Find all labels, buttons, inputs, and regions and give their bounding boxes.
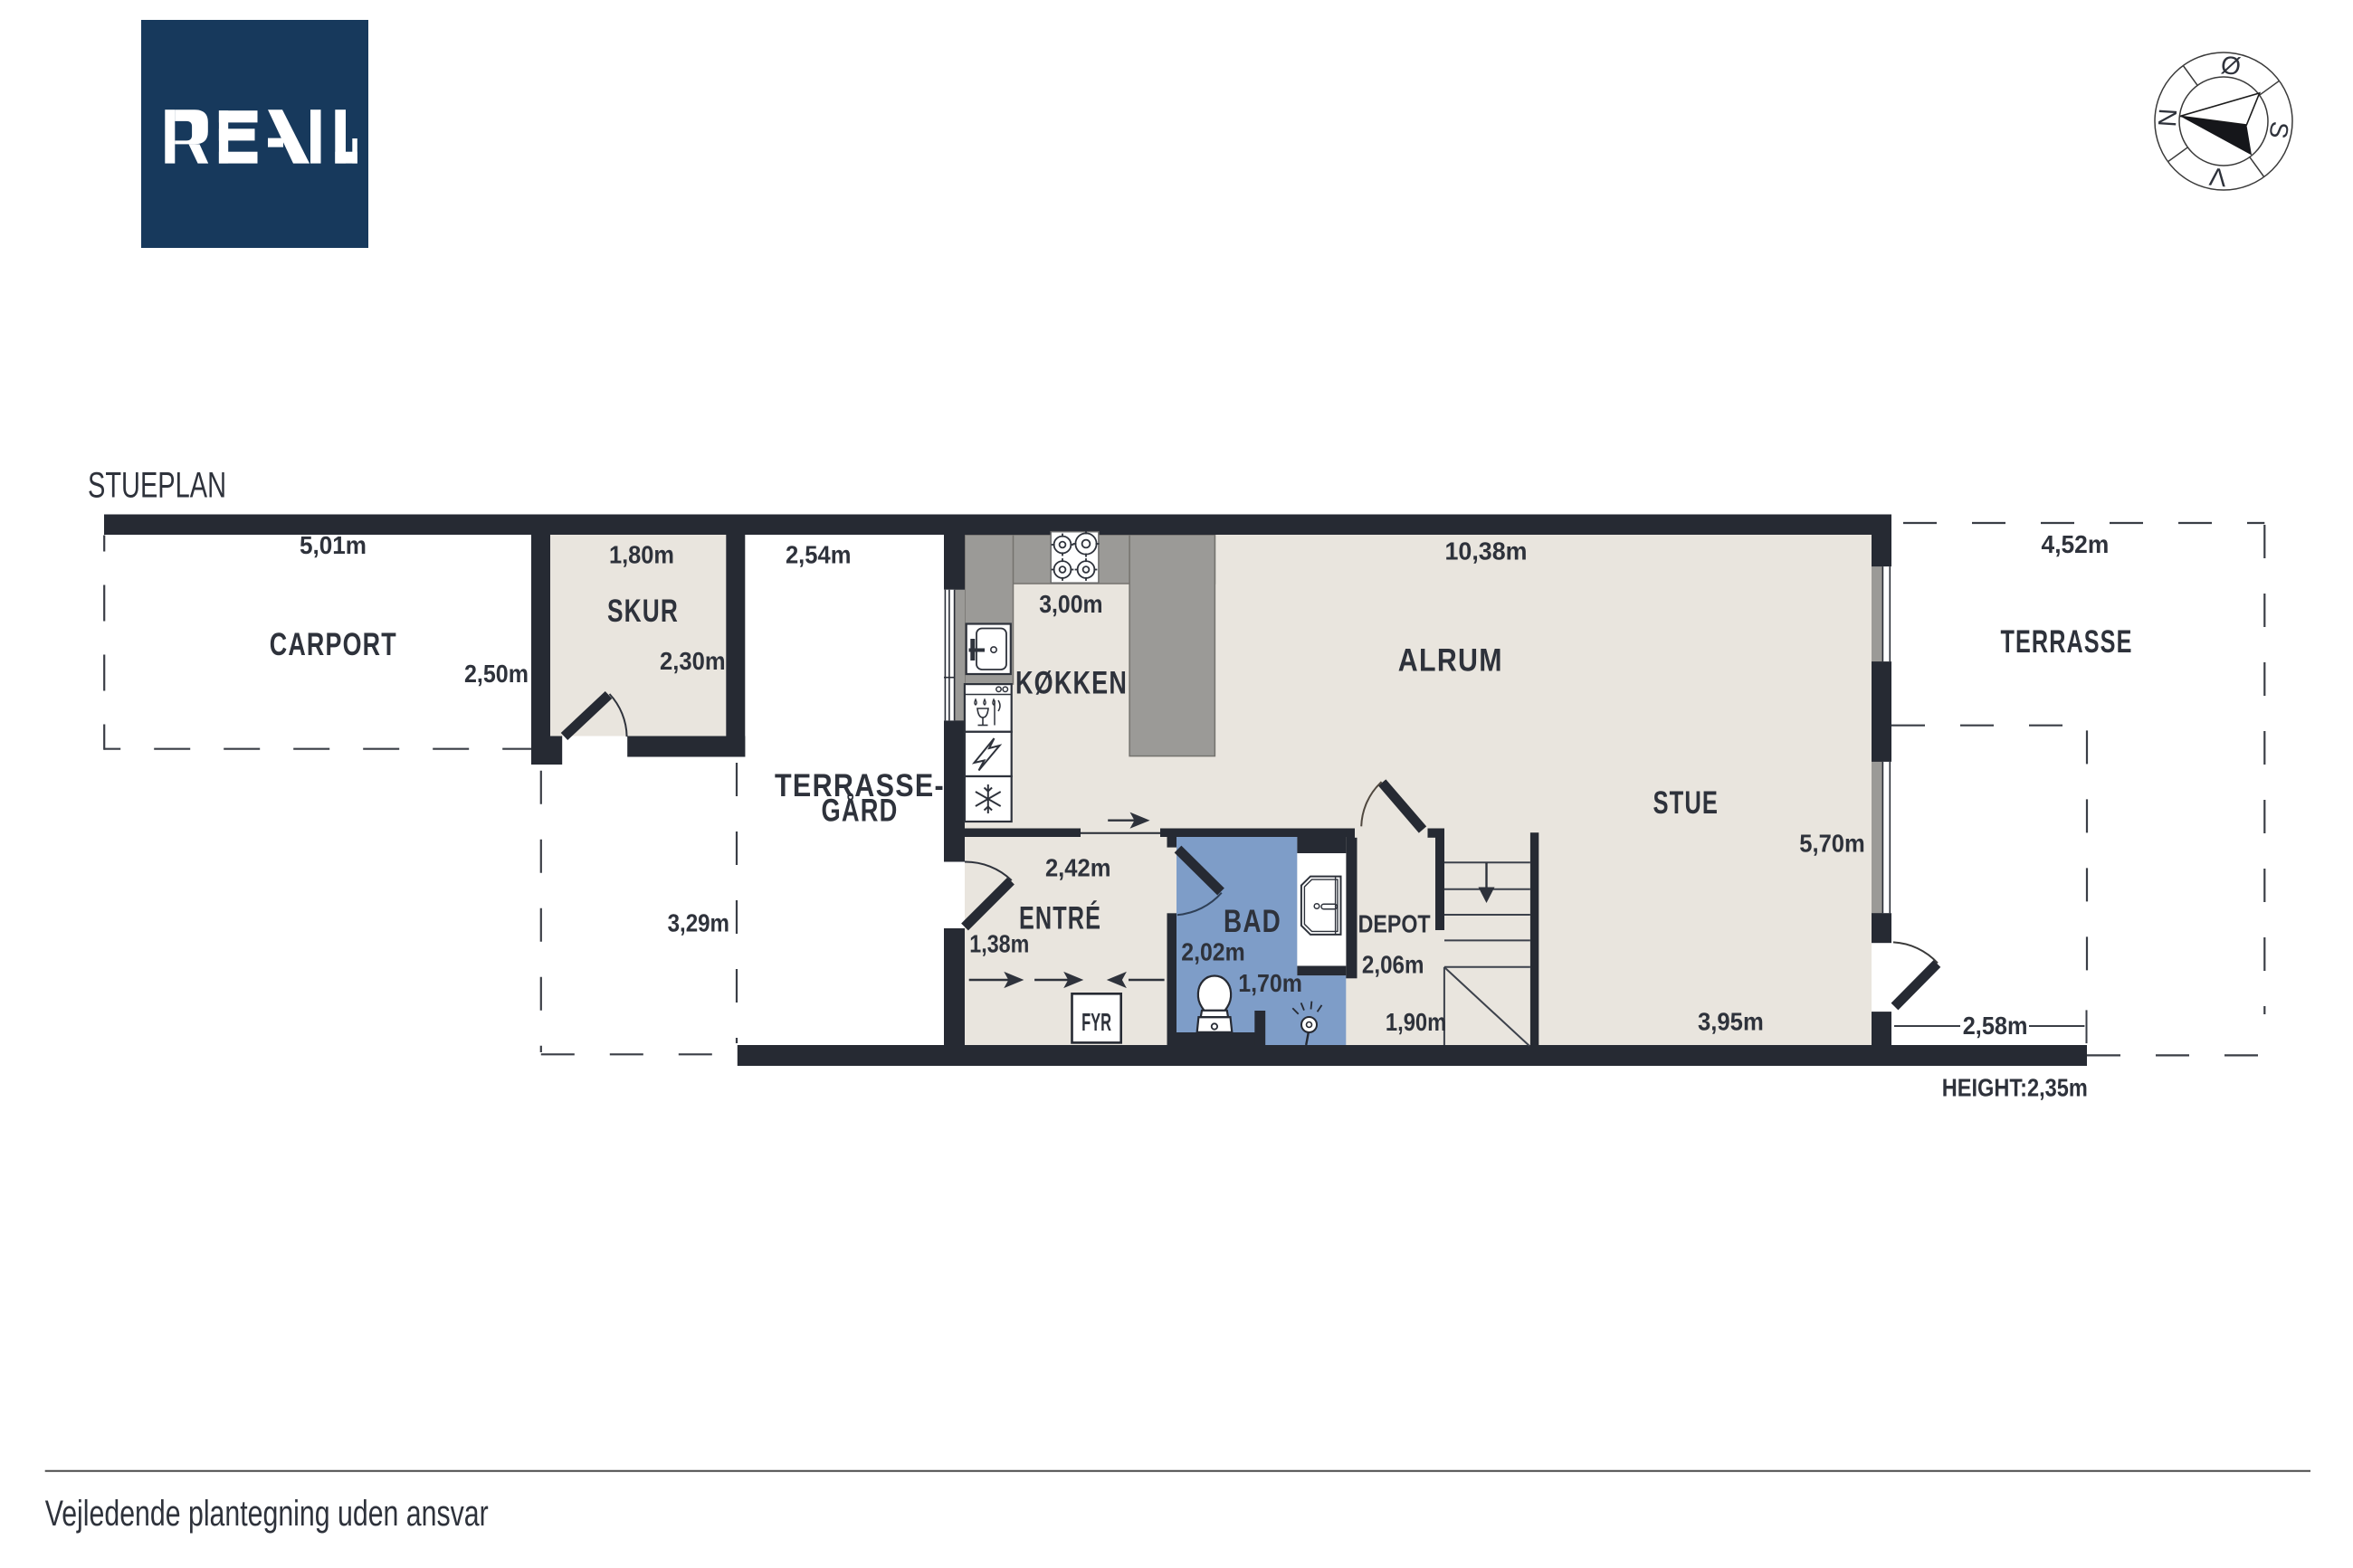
svg-text:5,70m: 5,70m [1799, 830, 1865, 858]
svg-text:1,70m: 1,70m [1238, 969, 1302, 997]
svg-text:3,00m: 3,00m [1039, 590, 1102, 618]
svg-text:2,02m: 2,02m [1181, 938, 1244, 966]
svg-text:1,80m: 1,80m [609, 541, 674, 569]
svg-text:2,42m: 2,42m [1045, 854, 1111, 882]
svg-text:STUE: STUE [1653, 785, 1719, 821]
svg-text:2,58m: 2,58m [1963, 1012, 2028, 1040]
svg-text:1,38m: 1,38m [969, 930, 1029, 958]
svg-text:FYR: FYR [1081, 1008, 1111, 1036]
svg-text:TERRASSE: TERRASSE [2001, 624, 2133, 660]
svg-text:2,06m: 2,06m [1362, 951, 1424, 979]
svg-text:1,90m: 1,90m [1386, 1008, 1447, 1036]
svg-text:Ø: Ø [2219, 51, 2243, 81]
svg-text:SKUR: SKUR [607, 594, 679, 629]
svg-text:5,01m: 5,01m [300, 531, 367, 559]
svg-text:4,52m: 4,52m [2042, 530, 2110, 558]
svg-text:ALRUM: ALRUM [1398, 643, 1503, 679]
svg-text:3,29m: 3,29m [668, 909, 729, 937]
svg-text:V: V [2207, 162, 2227, 192]
svg-text:STUEPLAN: STUEPLAN [88, 466, 226, 506]
svg-text:GÅRD: GÅRD [822, 793, 899, 829]
svg-text:HEIGHT:2,35m: HEIGHT:2,35m [1942, 1074, 2088, 1102]
svg-text:DEPOT: DEPOT [1358, 909, 1431, 937]
svg-text:KØKKEN: KØKKEN [1015, 666, 1128, 701]
svg-text:2,30m: 2,30m [660, 647, 726, 675]
svg-text:10,38m: 10,38m [1445, 537, 1528, 565]
svg-text:2,50m: 2,50m [464, 660, 529, 688]
svg-text:N: N [2153, 108, 2182, 128]
svg-text:BAD: BAD [1224, 904, 1281, 939]
svg-text:2,54m: 2,54m [786, 541, 852, 569]
svg-text:ENTRÉ: ENTRÉ [1019, 900, 1101, 936]
svg-text:Vejledende plantegning uden an: Vejledende plantegning uden ansvar [45, 1494, 489, 1534]
svg-text:CARPORT: CARPORT [270, 627, 397, 662]
svg-text:3,95m: 3,95m [1698, 1008, 1764, 1036]
